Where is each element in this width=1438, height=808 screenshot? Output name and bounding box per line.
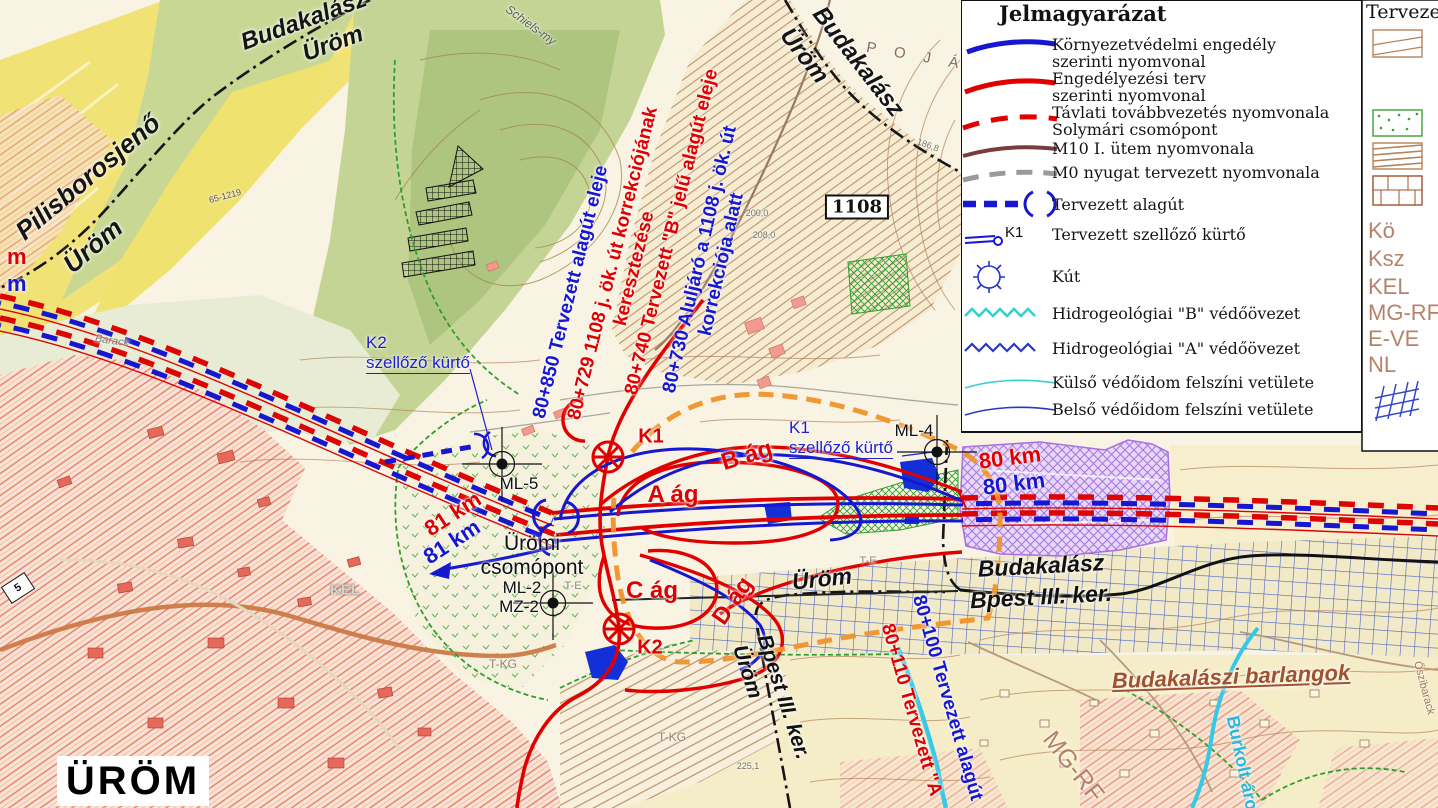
interchange-name-line1: Ürömi (504, 532, 560, 555)
marker-label-mz2: MZ-2 (499, 597, 539, 617)
km-label-cut-red: m (7, 244, 27, 270)
zone-label-tkg2: T-KG (489, 657, 517, 671)
zone-label-ko: Kö (1368, 218, 1395, 244)
spot-height-208: 208,0 (753, 230, 776, 240)
zone-label-mgrf: MG-RF (1368, 300, 1438, 326)
interchange-name: Ürömicsomópont (481, 532, 584, 580)
legend-entry-tavlati: Távlati továbbvezetés nyomvonalaSolymári… (1052, 104, 1329, 138)
legend-entry-kurto: Tervezett szellőző kürtő (1052, 226, 1246, 243)
km-label-cut-blue: m (7, 271, 27, 297)
marker-label-ml4: ML-4 (895, 421, 934, 441)
zone-label-nl: NL (1368, 352, 1396, 378)
k2-shaft-text: szellőző kürtő (366, 353, 470, 374)
ramp-label-c: C ág (626, 577, 678, 605)
legend-entry-hidroA: Hidrogeológiai "A" védőövezet (1052, 340, 1300, 357)
zone-label-te2: T-E (859, 555, 876, 567)
road-number-1108: 1108 (825, 195, 889, 220)
legend-panel: Jelmagyarázat Környezetvédelmi engedélys… (961, 0, 1438, 455)
legend-entry-kulso: Külső védőidom felszíni vetülete (1052, 374, 1314, 391)
marker-label-ml2: ML-2 (503, 578, 542, 598)
spot-height-225: 225,1 (737, 761, 760, 771)
legend-title: Jelmagyarázat (999, 1, 1167, 26)
zone-label-kel: KEL (1368, 274, 1410, 300)
shaft-id-k1: K1 (638, 426, 664, 449)
legend-entry-hidroB: Hidrogeológiai "B" védőövezet (1052, 305, 1300, 322)
spot-height-200: 200,0 (746, 208, 769, 218)
legend-entry-m0: M0 nyugat tervezett nyomvonala (1052, 164, 1320, 181)
map-screenshot: Pilisborosjenő Üröm Budakalász Üröm Buda… (0, 0, 1438, 808)
legend-k1-tag: K1 (1005, 224, 1023, 241)
shaft-id-k2: K2 (637, 637, 663, 660)
interchange-name-line2: csomópont (481, 556, 584, 579)
legend-right-title: Tervezett (1366, 1, 1438, 23)
legend-entry-terv: Engedélyezési tervszerinti nyomvonal (1052, 70, 1206, 104)
town-label-urom-big-text: ÜRÖM (66, 759, 200, 804)
town-label-urom-big: ÜRÖM (57, 756, 209, 806)
legend-entry-kut: Kút (1052, 268, 1080, 285)
k1-shaft-id: K1 (789, 418, 810, 437)
ramp-label-a: A ág (647, 481, 698, 509)
k1-shaft-text: szellőző kürtő (789, 438, 893, 459)
zone-label-tkg1: T-KG (658, 730, 686, 744)
marker-label-ml5: ML-5 (500, 474, 539, 494)
zone-label-kel-map: KEL (330, 582, 360, 599)
k2-shaft-id: K2 (366, 333, 387, 352)
legend-entry-m10: M10 I. ütem nyomvonala (1052, 140, 1254, 157)
legend-entry-tavlati-l2: Solymári csomópont (1052, 120, 1218, 139)
legend-entry-env: Környezetvédelmi engedélyszerinti nyomvo… (1052, 36, 1276, 70)
k1-shaft-label: K1szellőző kürtő (789, 418, 893, 458)
legend-entry-belso: Belső védőidom felszíni vetülete (1052, 401, 1313, 418)
zone-label-te1: T-E (564, 580, 581, 592)
zone-label-eve: E-VE (1368, 326, 1419, 352)
zone-label-ksz: Ksz (1368, 246, 1405, 272)
k2-shaft-label: K2szellőző kürtő (366, 333, 470, 373)
legend-entry-alagut: Tervezett alagút (1052, 196, 1184, 213)
road-sign-5-text: 5 (12, 581, 24, 594)
